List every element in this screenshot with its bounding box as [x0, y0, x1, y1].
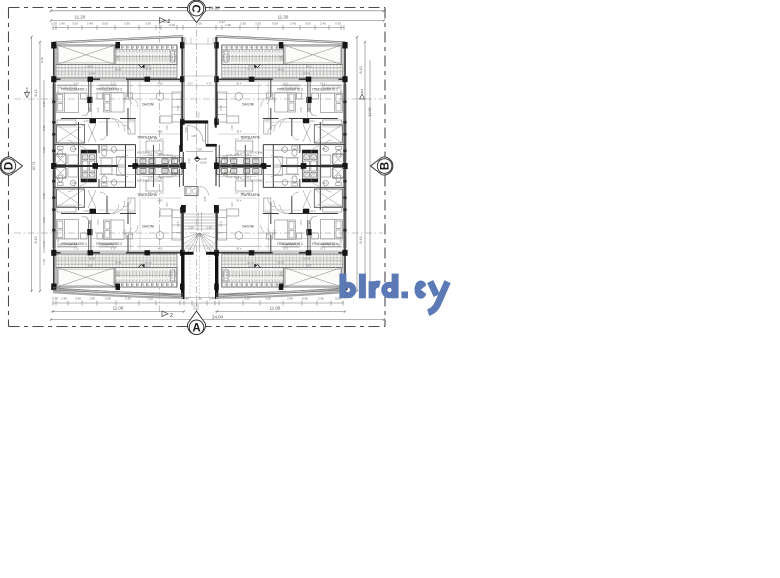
svg-text:4.33: 4.33: [206, 82, 212, 86]
svg-text:8.43: 8.43: [359, 237, 363, 244]
svg-text:ΥΠΝΟΔΩΜΑΤΙΟ 1: ΥΠΝΟΔΩΜΑΤΙΟ 1: [312, 88, 338, 92]
svg-text:0.30: 0.30: [335, 21, 341, 25]
svg-text:2.23: 2.23: [170, 55, 174, 61]
svg-text:1.43: 1.43: [42, 241, 46, 247]
svg-text:4.80: 4.80: [157, 129, 163, 133]
svg-text:3.30: 3.30: [145, 21, 151, 25]
svg-text:16.40: 16.40: [89, 72, 96, 76]
svg-text:6.33: 6.33: [197, 112, 201, 118]
svg-text:3.10: 3.10: [73, 81, 79, 85]
svg-text:ΥΠΝΟΔΩΜΑΤΙΟ 1: ΥΠΝΟΔΩΜΑΤΙΟ 1: [61, 88, 87, 92]
svg-text:8.43: 8.43: [34, 90, 38, 97]
svg-text:11.20: 11.20: [75, 15, 86, 20]
svg-text:0.90: 0.90: [105, 297, 111, 301]
svg-text:ΥΠΝΟΔΩΜΑΤΙΟ 1: ΥΠΝΟΔΩΜΑΤΙΟ 1: [61, 242, 87, 246]
svg-text:4.33: 4.33: [206, 246, 212, 250]
svg-text:2.40: 2.40: [59, 21, 65, 25]
svg-text:1.55: 1.55: [203, 196, 207, 202]
svg-text:0.60: 0.60: [40, 57, 44, 63]
svg-text:2.40: 2.40: [318, 297, 324, 301]
svg-text:11.06: 11.06: [113, 305, 124, 310]
svg-text:2.20: 2.20: [116, 55, 120, 61]
svg-text:7.06: 7.06: [165, 125, 169, 131]
svg-text:0.30: 0.30: [51, 21, 57, 25]
svg-text:ΣΑΛΟΝΙ: ΣΑΛΟΝΙ: [242, 103, 254, 107]
svg-text:1.50: 1.50: [184, 127, 188, 133]
svg-text:ΣΑΛΟΝΙ: ΣΑΛΟΝΙ: [142, 225, 154, 229]
svg-text:2.40: 2.40: [290, 21, 296, 25]
svg-text:10.40: 10.40: [115, 67, 122, 71]
svg-text:20.71: 20.71: [32, 162, 36, 171]
svg-text:ΥΠΝΟΔΩΜΑΤΙΟ 2: ΥΠΝΟΔΩΜΑΤΙΟ 2: [277, 88, 303, 92]
svg-text:3.20: 3.20: [96, 107, 100, 113]
svg-text:5.00: 5.00: [42, 147, 46, 153]
svg-text:3.05: 3.05: [305, 21, 311, 25]
svg-text:+0.20: +0.20: [144, 63, 151, 67]
svg-text:1: 1: [26, 87, 29, 93]
svg-text:ΤΡΑΠΕΖΑΡΙΑ: ΤΡΑΠΕΖΑΡΙΑ: [240, 193, 260, 197]
svg-text:12.98: 12.98: [368, 108, 372, 117]
svg-text:ΤΡΑΠΕΖΑΡΙΑ: ΤΡΑΠΕΖΑΡΙΑ: [137, 193, 157, 197]
svg-text:1.40: 1.40: [42, 259, 46, 265]
svg-text:11.06: 11.06: [270, 305, 281, 310]
svg-text:2.20: 2.20: [83, 119, 89, 123]
svg-text:ΥΠΝΟΔΩΜΑΤΙΟ 1: ΥΠΝΟΔΩΜΑΤΙΟ 1: [312, 242, 338, 246]
svg-text:1.90: 1.90: [71, 147, 77, 151]
svg-text:3.86: 3.86: [90, 97, 94, 103]
svg-text:3.05: 3.05: [72, 21, 78, 25]
svg-text:D: D: [4, 162, 16, 170]
svg-text:2.40: 2.40: [87, 21, 93, 25]
svg-text:+0.00: +0.00: [199, 161, 207, 165]
svg-text:2: 2: [170, 313, 173, 319]
svg-text:3.10: 3.10: [110, 81, 116, 85]
svg-text:0.40: 0.40: [302, 297, 308, 301]
svg-text:+0.10: +0.10: [145, 67, 152, 71]
svg-text:1.20: 1.20: [188, 226, 194, 230]
svg-text:8.43: 8.43: [34, 237, 38, 244]
svg-text:ΤΡΑΠΕΖΑΡΙΑ: ΤΡΑΠΕΖΑΡΙΑ: [240, 136, 260, 140]
svg-text:ΚΟΥΖΙΝΑ: ΚΟΥΖΙΝΑ: [137, 178, 149, 182]
svg-text:B: B: [380, 162, 392, 170]
svg-text:3.30: 3.30: [124, 21, 130, 25]
svg-text:A: A: [192, 322, 200, 334]
svg-text:2: 2: [168, 19, 171, 25]
svg-text:ΚΟΥΖΙΝΑ: ΚΟΥΖΙΝΑ: [251, 151, 263, 155]
svg-text:ΣΑΛΟΝΙ: ΣΑΛΟΝΙ: [242, 225, 254, 229]
svg-text:2.40: 2.40: [89, 297, 95, 301]
svg-text:3.30: 3.30: [240, 21, 246, 25]
svg-text:0.90: 0.90: [42, 125, 46, 131]
svg-text:ΥΠΝΟΔΩΜΑΤΙΟ 2: ΥΠΝΟΔΩΜΑΤΙΟ 2: [96, 88, 122, 92]
svg-text:ΥΠΝΟΔΩΜΑΤΙΟ 2: ΥΠΝΟΔΩΜΑΤΙΟ 2: [277, 242, 303, 246]
svg-text:24.04: 24.04: [212, 315, 224, 320]
svg-text:5.00: 5.00: [272, 21, 278, 25]
svg-text:ΤΡΑΠΕΖΑΡΙΑ: ΤΡΑΠΕΖΑΡΙΑ: [137, 136, 157, 140]
svg-text:3.26: 3.26: [42, 101, 46, 107]
svg-text:11.30: 11.30: [278, 15, 289, 20]
svg-text:3.10: 3.10: [187, 158, 191, 164]
svg-text:2.70: 2.70: [42, 193, 46, 199]
svg-text:ΥΠΝΟΔΩΜΑΤΙΟ 2: ΥΠΝΟΔΩΜΑΤΙΟ 2: [96, 242, 122, 246]
svg-text:5.00: 5.00: [102, 21, 108, 25]
svg-text:1.86: 1.86: [191, 134, 197, 138]
svg-text:0.40: 0.40: [75, 297, 81, 301]
svg-text:4.33: 4.33: [187, 82, 193, 86]
svg-text:1.30: 1.30: [225, 23, 231, 27]
svg-text:1.30: 1.30: [206, 226, 212, 230]
svg-text:2.02: 2.02: [193, 307, 199, 311]
svg-text:8.08: 8.08: [87, 65, 93, 69]
svg-text:8.42: 8.42: [176, 105, 180, 111]
svg-text:1: 1: [361, 89, 364, 95]
svg-text:0.08: 0.08: [52, 297, 58, 301]
svg-text:3.30: 3.30: [255, 21, 261, 25]
svg-text:1.93: 1.93: [42, 217, 46, 223]
svg-text:8.43: 8.43: [359, 67, 363, 74]
svg-text:4.06: 4.06: [157, 82, 163, 86]
svg-text:2.08: 2.08: [196, 148, 202, 152]
svg-text:ΣΑΛΟΝΙ: ΣΑΛΟΝΙ: [142, 103, 154, 107]
svg-text:2.40: 2.40: [61, 297, 67, 301]
svg-text:24.86: 24.86: [209, 6, 221, 11]
svg-text:ΚΟΥΖΙΝΑ: ΚΟΥΖΙΝΑ: [137, 151, 149, 155]
svg-text:2.40: 2.40: [320, 21, 326, 25]
svg-text:3.20: 3.20: [123, 97, 127, 103]
svg-text:B-204: B-204: [221, 171, 229, 175]
svg-text:2.40: 2.40: [287, 297, 293, 301]
svg-text:ΚΟΥΖΙΝΑ: ΚΟΥΖΙΝΑ: [251, 178, 263, 182]
